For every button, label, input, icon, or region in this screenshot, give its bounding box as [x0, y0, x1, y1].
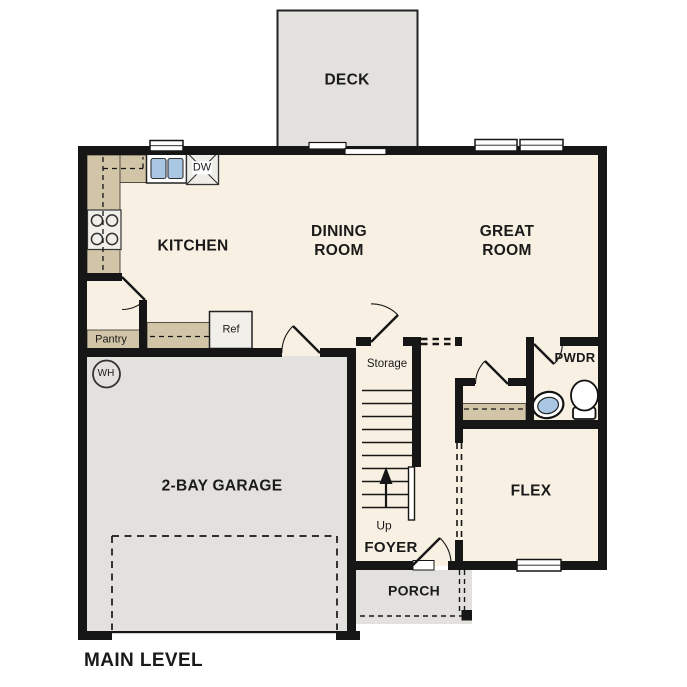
- powder-room-label: PWDR: [555, 350, 596, 366]
- water-heater-label: WH: [98, 368, 115, 380]
- wall-closet-top-right: [508, 378, 526, 386]
- refrigerator-label: Ref: [222, 323, 239, 336]
- plan-title: MAIN LEVEL: [84, 650, 203, 672]
- wall-cased-opening-jamb: [455, 337, 462, 346]
- sink-basin-left: [151, 159, 166, 179]
- wall-kitchen-garage-right: [320, 348, 356, 357]
- storage-label: Storage: [367, 357, 407, 371]
- wall-hall-left: [455, 378, 463, 443]
- wall-storage-top-left: [356, 337, 371, 346]
- wall-stair-right: [412, 337, 421, 467]
- wall-garage-bottom-left: [78, 631, 112, 640]
- wall-closet-top-left: [455, 378, 475, 386]
- flex-label: FLEX: [511, 483, 552, 502]
- sliding-door-panel-2: [345, 149, 386, 155]
- floor-plan: DECK KITCHEN DINING ROOM GREAT ROOM 2-BA…: [0, 0, 687, 687]
- kitchen-label: KITCHEN: [158, 238, 229, 257]
- closet-shelf: [462, 404, 526, 421]
- porch-label: PORCH: [388, 582, 440, 599]
- kitchen-counter-bottom: [147, 323, 210, 349]
- wall-pwdr-top: [560, 337, 607, 346]
- wall-flex-top: [455, 420, 607, 429]
- stair-rail: [409, 467, 415, 520]
- great-room-label: GREAT ROOM: [461, 223, 553, 261]
- wall-exterior-left: [78, 146, 87, 640]
- porch-post: [462, 610, 473, 621]
- dishwasher-label: DW: [192, 161, 212, 174]
- sliding-door-panel-1: [309, 143, 346, 150]
- wall-pantry-top: [78, 273, 122, 281]
- pantry-label: Pantry: [95, 333, 127, 346]
- garage-label: 2-BAY GARAGE: [156, 478, 288, 497]
- deck-label: DECK: [324, 72, 369, 91]
- wall-garage-right: [347, 348, 356, 640]
- wall-pwdr-left: [526, 337, 534, 428]
- floor-fills: [82, 11, 603, 633]
- toilet-icon: [571, 381, 598, 420]
- foyer-label: FOYER: [364, 539, 417, 557]
- wall-foyer-bottom: [347, 561, 413, 570]
- wall-pantry-right: [139, 300, 147, 348]
- garage-opening-line: [112, 631, 336, 633]
- sink-basin-right: [168, 159, 183, 179]
- dining-room-label: DINING ROOM: [293, 223, 385, 261]
- wall-exterior-right: [598, 146, 607, 570]
- wall-kitchen-garage-left: [78, 348, 282, 357]
- stairs-up-label: Up: [376, 519, 391, 534]
